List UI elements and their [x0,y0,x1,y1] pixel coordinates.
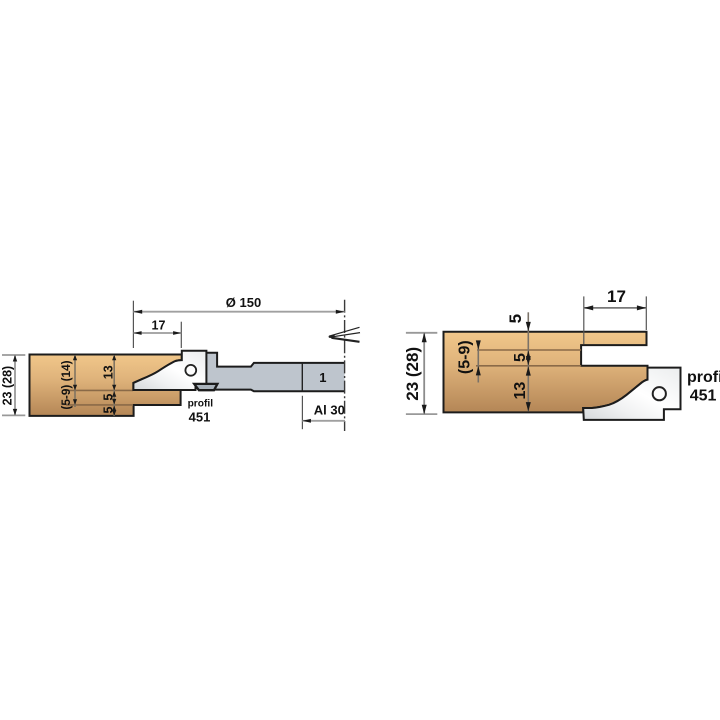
svg-text:profil: profil [687,369,720,386]
svg-text:23 (28): 23 (28) [403,347,422,401]
svg-text:451: 451 [189,409,211,424]
svg-text:451: 451 [690,387,717,404]
svg-text:Ø 150: Ø 150 [226,295,261,310]
svg-text:17: 17 [152,318,166,332]
svg-text:5: 5 [512,353,529,362]
svg-text:13: 13 [102,365,116,379]
svg-text:17: 17 [607,287,626,306]
svg-text:(5-9): (5-9) [457,340,474,374]
svg-text:23 (28): 23 (28) [1,366,15,406]
svg-text:5: 5 [102,406,116,413]
svg-text:13: 13 [512,382,529,400]
svg-text:1: 1 [319,370,326,385]
svg-text:(5-9) (14): (5-9) (14) [59,360,73,409]
svg-text:Al 30: Al 30 [314,403,345,418]
svg-text:profil: profil [188,398,214,409]
svg-text:5: 5 [102,394,116,401]
svg-text:5: 5 [506,314,525,323]
